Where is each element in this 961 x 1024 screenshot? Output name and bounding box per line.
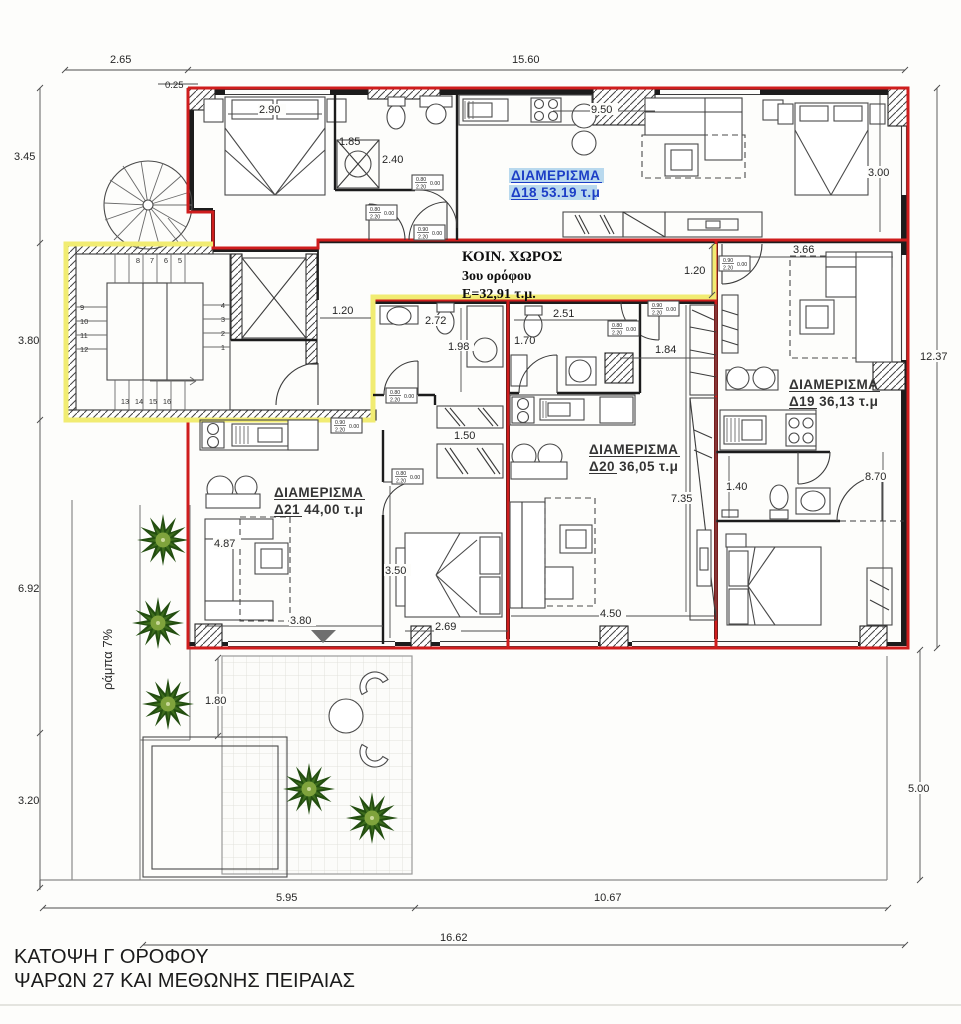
stair-number: 10 bbox=[80, 317, 88, 326]
apartment-info: Δ20 36,05 τ.μ bbox=[589, 459, 678, 474]
nightstand bbox=[726, 534, 746, 547]
bedroom bbox=[726, 534, 892, 625]
stair-number: 7 bbox=[150, 256, 154, 265]
chair bbox=[727, 367, 749, 389]
stair-number: 11 bbox=[80, 331, 88, 340]
kitchen bbox=[510, 395, 635, 425]
apartment-label: ΔΙΑΜΕΡΙΣΜΑ bbox=[511, 168, 600, 183]
svg-text:0.00: 0.00 bbox=[737, 262, 747, 268]
apartment-d18-label: ΔΙΑΜΕΡΙΣΜΑ Δ18 53.19 τ.μ bbox=[509, 168, 604, 200]
closet bbox=[437, 406, 503, 478]
dim-terrace: 1.80 bbox=[205, 695, 226, 707]
dim-d20-bath-depth: 1.70 bbox=[514, 335, 535, 347]
sink bbox=[801, 491, 825, 511]
svg-text:0.00: 0.00 bbox=[410, 475, 420, 481]
drawing-title: ΚΑΤΟΨΗ Γ ΟΡΟΦΟΥ bbox=[14, 946, 209, 968]
dim-d21-bed-depth: 3.50 bbox=[385, 565, 406, 577]
dim-corridor-left: 1.20 bbox=[332, 305, 353, 317]
dim-d20-bath-width: 2.51 bbox=[553, 308, 574, 320]
stairwell: 1 2 3 4 5 6 7 8 9 10 11 12 13 14 15 16 bbox=[66, 244, 376, 420]
wardrobe bbox=[690, 305, 716, 395]
stair-number: 12 bbox=[80, 345, 88, 354]
stair-number: 9 bbox=[80, 303, 84, 312]
svg-text:0.00: 0.00 bbox=[430, 181, 440, 187]
common-area-size: Ε=32,91 τ.μ. bbox=[462, 287, 536, 302]
apartment-label: ΔΙΑΜΕΡΙΣΜΑ bbox=[274, 485, 363, 500]
svg-text:0.00: 0.00 bbox=[384, 211, 394, 217]
dim-bed18: 2.90 bbox=[259, 104, 280, 116]
dim-d19-top: 3.66 bbox=[793, 244, 814, 256]
bedroom bbox=[383, 430, 502, 644]
dim-left-lower: 6.92 bbox=[18, 583, 39, 595]
column bbox=[600, 626, 628, 647]
drawing-subtitle: ΨΑΡΩΝ 27 ΚΑΙ ΜΕΘΩΝΗΣ ΠΕΙΡΑΙΑΣ bbox=[14, 970, 355, 992]
ramp-label: ράμπα 7% bbox=[100, 628, 115, 690]
svg-text:0.80: 0.80 bbox=[416, 177, 426, 183]
stair-number: 13 bbox=[121, 397, 129, 406]
svg-text:2.20: 2.20 bbox=[390, 398, 400, 404]
door-arc bbox=[798, 452, 830, 484]
svg-text:0.90: 0.90 bbox=[418, 227, 428, 233]
chair bbox=[753, 367, 775, 389]
stair-number: 15 bbox=[149, 397, 157, 406]
dim-top-offset: 0.25 bbox=[165, 80, 184, 91]
dining bbox=[726, 367, 778, 390]
dim-d21-bath-width: 2.72 bbox=[425, 315, 446, 327]
svg-text:2.20: 2.20 bbox=[652, 311, 662, 317]
dim-right-upper: 12.37 bbox=[920, 351, 948, 363]
dim-shower18: 1.85 bbox=[339, 136, 360, 148]
svg-text:2.20: 2.20 bbox=[723, 266, 733, 272]
spiral-staircase bbox=[104, 161, 192, 249]
dim-left-mid: 3.80 bbox=[18, 335, 39, 347]
apartment-d19-label: ΔΙΑΜΕΡΙΣΜΑ Δ19 36,13 τ.μ bbox=[789, 377, 880, 409]
kitchen-sink bbox=[463, 99, 508, 121]
kitchen bbox=[200, 420, 318, 450]
elevator bbox=[231, 254, 318, 405]
dining bbox=[511, 444, 567, 479]
tv-stand bbox=[665, 144, 698, 176]
svg-text:0.00: 0.00 bbox=[404, 394, 414, 400]
stair-number: 3 bbox=[221, 315, 225, 324]
bath-accessory bbox=[722, 510, 738, 517]
dim-left-bottom: 3.20 bbox=[18, 795, 39, 807]
apartment-d21-label: ΔΙΑΜΕΡΙΣΜΑ Δ21 44,00 τ.μ bbox=[274, 485, 365, 517]
sink bbox=[426, 104, 446, 124]
tv-stand bbox=[255, 543, 288, 574]
floor-plan-page: 1 2 3 4 5 6 7 8 9 10 11 12 13 14 15 16 bbox=[0, 0, 961, 1024]
dim-d21-living-width: 4.87 bbox=[214, 538, 235, 550]
dim-top-left: 2.65 bbox=[110, 54, 131, 66]
kitchen bbox=[720, 410, 816, 450]
dim-bottom-right: 10.67 bbox=[594, 892, 622, 904]
stair-number: 1 bbox=[221, 343, 225, 352]
svg-text:2.20: 2.20 bbox=[335, 428, 345, 434]
dim-d21-bath-depth: 1.98 bbox=[448, 341, 469, 353]
table bbox=[511, 462, 567, 479]
common-area-floor: 3ου ορόφου bbox=[462, 269, 531, 284]
dim-d19-length: 8.70 bbox=[865, 471, 886, 483]
column bbox=[195, 624, 222, 647]
table bbox=[206, 494, 260, 508]
tv-stand bbox=[560, 525, 592, 553]
sink bbox=[387, 307, 411, 325]
patio-table bbox=[329, 699, 363, 733]
svg-text:0.80: 0.80 bbox=[612, 323, 622, 329]
dim-d20-closet: 1.84 bbox=[655, 344, 676, 356]
column bbox=[860, 626, 887, 647]
dim-bed18-right: 3.00 bbox=[868, 167, 889, 179]
dim-right-lower: 5.00 bbox=[908, 783, 929, 795]
svg-text:2.20: 2.20 bbox=[370, 215, 380, 221]
dim-left-upper: 3.45 bbox=[14, 151, 35, 163]
kitchen bbox=[459, 95, 596, 155]
title-block: ΚΑΤΟΨΗ Γ ΟΡΟΦΟΥ ΨΑΡΩΝ 27 ΚΑΙ ΜΕΘΩΝΗΣ ΠΕΙ… bbox=[0, 946, 961, 1005]
dim-d20-living: 4.50 bbox=[600, 608, 621, 620]
living-room bbox=[205, 517, 290, 621]
stair-number: 6 bbox=[164, 256, 168, 265]
living-room bbox=[790, 252, 892, 362]
bench bbox=[396, 548, 405, 606]
svg-text:0.00: 0.00 bbox=[349, 424, 359, 430]
bathtub bbox=[467, 306, 503, 367]
stair-number: 14 bbox=[135, 397, 143, 406]
bedroom-right bbox=[778, 103, 885, 195]
common-area-name: ΚΟΙΝ. ΧΩΡΟΣ bbox=[462, 249, 563, 265]
dim-kitchen18: 9.50 bbox=[591, 104, 612, 116]
apartment-label: ΔΙΑΜΕΡΙΣΜΑ bbox=[589, 442, 678, 457]
wardrobe bbox=[867, 568, 892, 625]
apartment-info: Δ18 53.19 τ.μ bbox=[511, 185, 600, 200]
apartment-d18: ΔΙΑΜΕΡΙΣΜΑ Δ18 53.19 τ.μ bbox=[204, 95, 885, 240]
svg-text:0.00: 0.00 bbox=[432, 231, 442, 237]
washing-machine bbox=[511, 355, 527, 386]
floor-plan-drawing: 1 2 3 4 5 6 7 8 9 10 11 12 13 14 15 16 bbox=[0, 0, 961, 1024]
svg-text:2.20: 2.20 bbox=[612, 331, 622, 337]
apartment-d19: ΔΙΑΜΕΡΙΣΜΑ Δ19 36,13 τ.μ 3.66 1.40 8.70 bbox=[716, 244, 904, 628]
living-room bbox=[642, 98, 783, 178]
dim-hall18: 2.40 bbox=[382, 154, 403, 166]
svg-text:2.20: 2.20 bbox=[418, 235, 428, 241]
dim-d19-bath: 1.40 bbox=[726, 481, 747, 493]
dim-d21-closet: 1.50 bbox=[454, 430, 475, 442]
svg-text:0.00: 0.00 bbox=[666, 307, 676, 313]
apartment-d21: ΔΙΑΜΕΡΙΣΜΑ Δ21 44,00 τ.μ 2.72 1.98 1.50 … bbox=[200, 303, 508, 644]
svg-text:2.20: 2.20 bbox=[396, 479, 406, 485]
sink bbox=[569, 360, 591, 382]
svg-text:0.80: 0.80 bbox=[396, 471, 406, 477]
kitchen-sink bbox=[540, 399, 584, 420]
svg-text:0.90: 0.90 bbox=[335, 420, 345, 426]
stair-number: 8 bbox=[136, 256, 140, 265]
apartment-label: ΔΙΑΜΕΡΙΣΜΑ bbox=[789, 377, 878, 392]
apartment-info: Δ21 44,00 τ.μ bbox=[274, 502, 363, 517]
living-room bbox=[510, 498, 711, 608]
svg-text:0.80: 0.80 bbox=[390, 390, 400, 396]
table bbox=[572, 131, 596, 155]
svg-text:0.00: 0.00 bbox=[626, 327, 636, 333]
sofa bbox=[205, 519, 273, 539]
dining bbox=[206, 476, 260, 508]
apartment-d20: ΔΙΑΜΕΡΙΣΜΑ Δ20 36,05 τ.μ 2.51 1.70 1.84 … bbox=[510, 302, 716, 620]
stair-number: 4 bbox=[221, 301, 225, 310]
door-arc bbox=[276, 363, 318, 405]
toilet bbox=[387, 105, 405, 129]
column bbox=[411, 626, 431, 647]
dim-top-main: 15.60 bbox=[512, 54, 540, 66]
svg-text:0.90: 0.90 bbox=[723, 258, 733, 264]
tv-stand bbox=[800, 300, 834, 334]
door-arc bbox=[383, 482, 416, 515]
stair-number: 5 bbox=[178, 256, 182, 265]
svg-text:0.90: 0.90 bbox=[652, 303, 662, 309]
apartment-info: Δ19 36,13 τ.μ bbox=[789, 394, 878, 409]
dim-d20-length: 7.35 bbox=[671, 493, 692, 505]
dim-bottom-left: 5.95 bbox=[276, 892, 297, 904]
dim-d21-bed-width: 2.69 bbox=[435, 621, 456, 633]
dim-d21-living: 3.80 bbox=[290, 615, 311, 627]
svg-text:0.80: 0.80 bbox=[370, 207, 380, 213]
duct bbox=[605, 353, 633, 383]
svg-text:2.20: 2.20 bbox=[416, 185, 426, 191]
wardrobe-row bbox=[563, 212, 762, 237]
stair-number: 2 bbox=[221, 329, 225, 338]
dim-corridor-right: 1.20 bbox=[684, 265, 705, 277]
toilet bbox=[524, 313, 542, 337]
apartment-d20-label: ΔΙΑΜΕΡΙΣΜΑ Δ20 36,05 τ.μ bbox=[589, 442, 680, 474]
sofa bbox=[510, 502, 545, 608]
stair-number: 16 bbox=[163, 397, 171, 406]
toilet bbox=[770, 485, 788, 509]
dim-bottom-total: 16.62 bbox=[440, 932, 468, 944]
column bbox=[888, 88, 908, 126]
